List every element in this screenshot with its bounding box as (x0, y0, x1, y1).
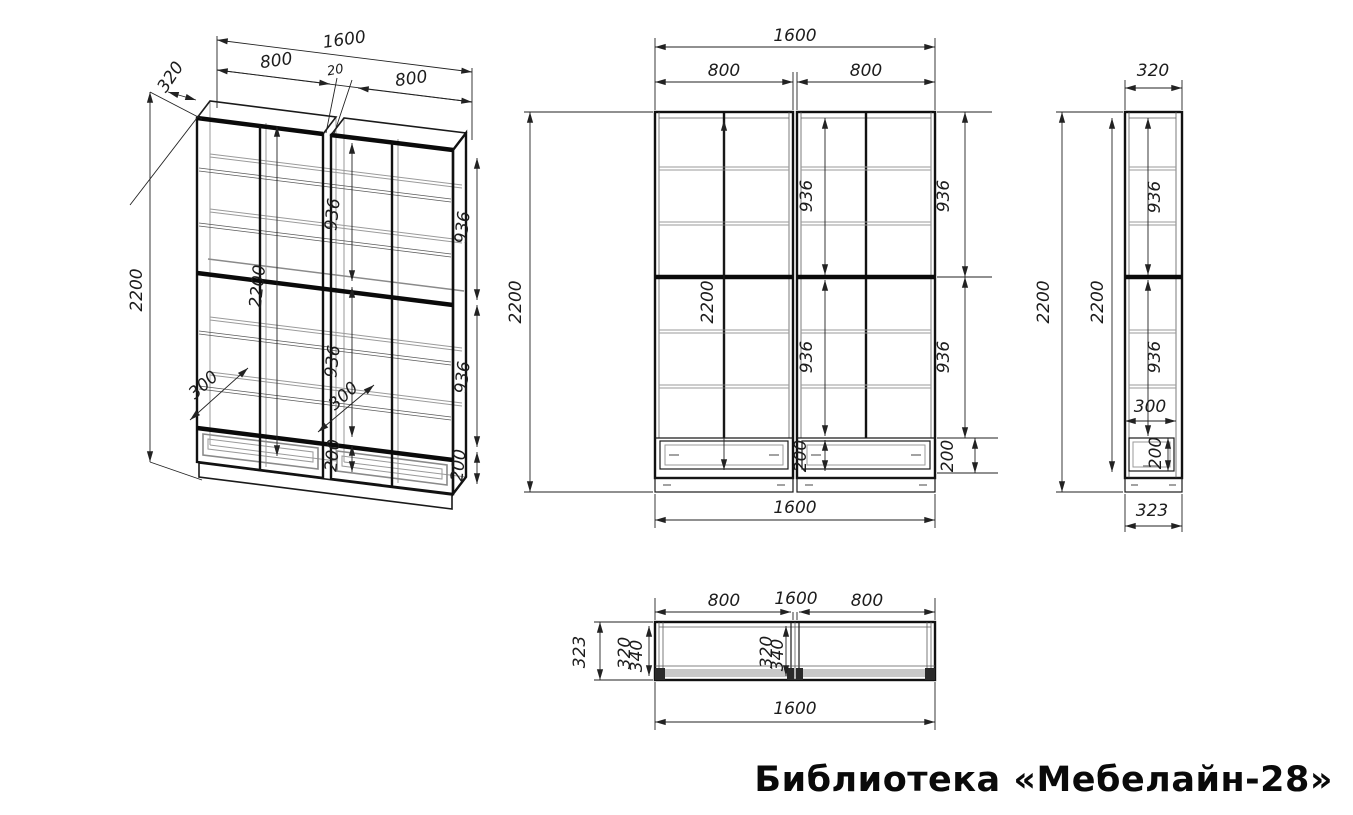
dim-iso-drawer-a: 200 (321, 438, 344, 472)
dim-iso-total-width: 1600 (321, 27, 367, 53)
plan-view: 800 1600 800 323 320 340 320 340 1600 (570, 589, 935, 730)
dim-iso-left-width: 800 (259, 49, 294, 73)
dim-iso-right-width: 800 (394, 67, 429, 91)
dim-iso-height-int: 2200 (246, 264, 270, 309)
front-left-base (655, 478, 793, 492)
dim-front-lower-ext: 936 (934, 341, 954, 374)
dim-front-total-width-top: 1600 (773, 26, 816, 46)
dim-plan-mid-width: 1600 (774, 589, 817, 609)
dim-side-drawer: 200 (1146, 437, 1166, 469)
plan-front-edge (657, 669, 933, 677)
dim-front-lower-int: 936 (797, 341, 817, 374)
dim-front-upper-ext: 936 (934, 180, 954, 213)
dim-front-height-ext: 2200 (506, 280, 526, 323)
dim-side-shelf-depth: 300 (1134, 397, 1166, 417)
front-view: 1600 800 800 2200 2200 936 936 200 936 9… (506, 26, 998, 528)
dim-iso-lower-a: 936 (321, 344, 344, 379)
dim-side-depth-bottom: 323 (1136, 501, 1168, 521)
dim-front-right-width: 800 (850, 61, 882, 81)
dim-front-left-width: 800 (708, 61, 740, 81)
dim-plan-depth-ext: 323 (570, 636, 590, 668)
dim-front-drawer-ext: 200 (938, 440, 958, 472)
product-title: Библиотека «Мебелайн-28» (633, 760, 1333, 800)
dim-iso-upper-b: 936 (451, 210, 474, 245)
dim-iso-upper-a: 936 (321, 197, 344, 232)
dim-front-drawer-int: 200 (791, 440, 811, 472)
dim-iso-lower-b: 936 (451, 360, 474, 395)
drawing-canvas: 1600 800 20 800 320 2200 2200 936 936 93… (0, 0, 1353, 815)
dim-iso-height-ext: 2200 (127, 268, 147, 311)
dim-side-depth-top: 320 (1137, 61, 1169, 81)
dim-front-height-int: 2200 (698, 280, 718, 323)
dim-plan-depth-int-b: 340 (627, 640, 647, 672)
dim-plan-total-width: 1600 (773, 699, 816, 719)
iso-view: 1600 800 20 800 320 2200 2200 936 936 93… (127, 27, 477, 509)
technical-drawing: 1600 800 20 800 320 2200 2200 936 936 93… (0, 0, 1353, 815)
dim-plan-right-width: 800 (851, 591, 883, 611)
dim-side-lower: 936 (1145, 341, 1165, 374)
dim-iso-gap: 20 (326, 62, 345, 80)
dim-side-upper: 936 (1145, 181, 1165, 214)
dim-front-upper-int: 936 (797, 180, 817, 213)
side-view: 320 2200 2200 936 936 300 200 323 (1034, 61, 1182, 532)
dim-side-height-ext: 2200 (1034, 280, 1054, 323)
dim-iso-drawer-b: 200 (447, 448, 470, 482)
dim-plan-depth-mid-b: 340 (768, 639, 788, 671)
front-right-base (797, 478, 935, 492)
dim-plan-left-width: 800 (708, 591, 740, 611)
dim-iso-depth: 320 (153, 58, 188, 96)
dim-side-height-int: 2200 (1088, 280, 1108, 323)
dim-front-total-width-bottom: 1600 (773, 498, 816, 518)
